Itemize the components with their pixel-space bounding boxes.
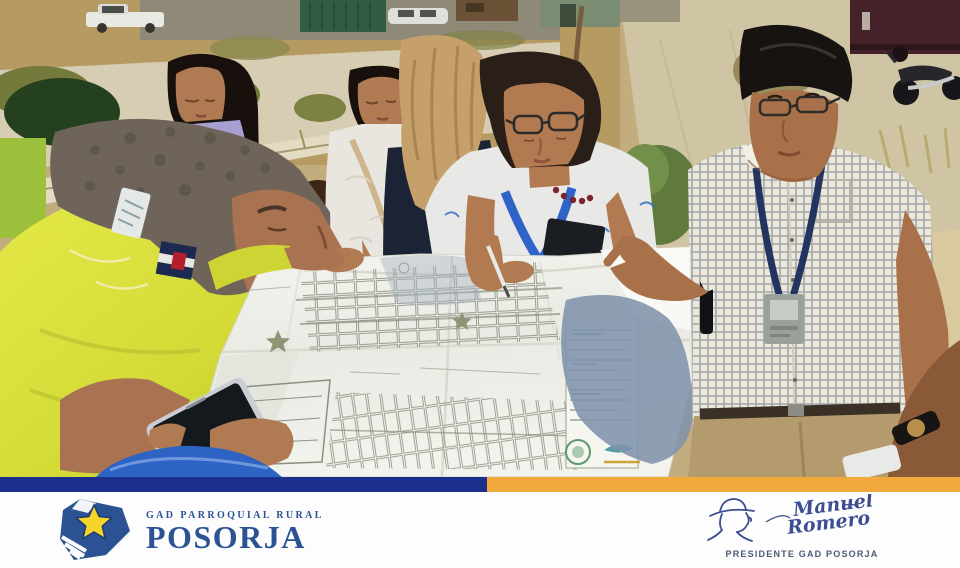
brand-name: POSORJA [146,521,324,555]
brand-logo: GAD PARROQUIAL RURAL POSORJA [52,497,324,561]
footer-bar-orange [487,477,960,492]
footer-bar-navy [0,477,487,492]
posorja-shield-icon [52,497,134,561]
id-badge [764,294,804,344]
brown-truck [456,0,518,21]
social-photo-post: GAD PARROQUIAL RURAL POSORJA Manuel Rome… [0,0,960,568]
president-signature: Manuel Romero PRESIDENTE GAD POSORJA [702,494,902,559]
tommy-flag-logo [156,241,197,280]
green-truck [300,0,386,32]
white-car [388,8,448,24]
signature-art: Manuel Romero [702,494,902,546]
footer-accent-bar [0,477,960,492]
man-with-hat-icon [708,499,754,541]
footer: GAD PARROQUIAL RURAL POSORJA Manuel Rome… [0,492,960,568]
photograph [0,0,960,477]
maroon-truck [850,0,960,62]
signature-title: PRESIDENTE GAD POSORJA [702,549,902,559]
